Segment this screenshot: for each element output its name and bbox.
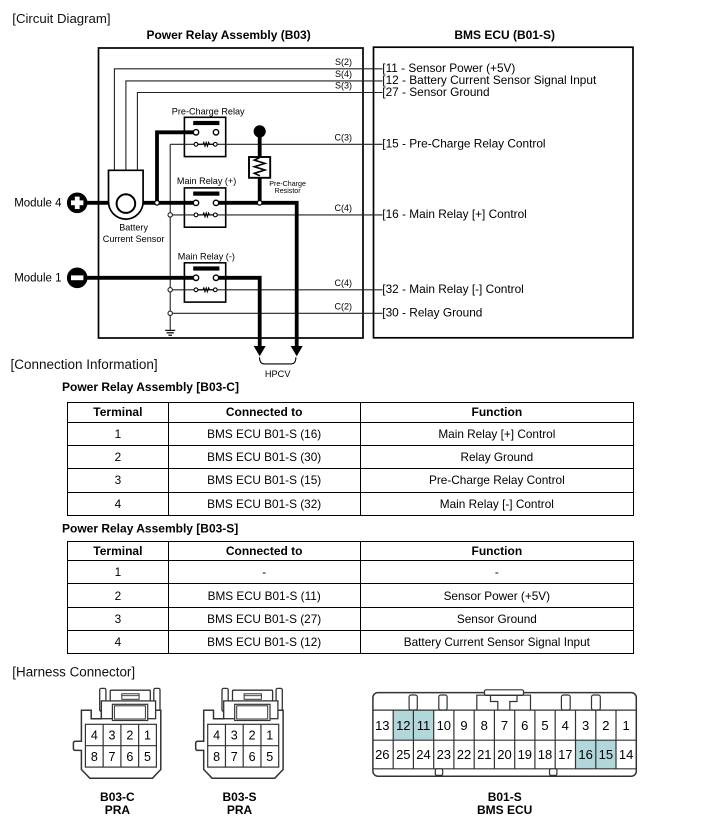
svg-text:BMS ECU (B01-S): BMS ECU (B01-S) <box>454 28 555 42</box>
svg-text:5: 5 <box>541 718 548 733</box>
svg-text:10: 10 <box>437 718 451 733</box>
svg-text:13: 13 <box>375 718 389 733</box>
svg-text:HPCV: HPCV <box>265 369 291 379</box>
svg-text:[16 - Main Relay [+] Control: [16 - Main Relay [+] Control <box>382 207 527 221</box>
svg-text:S(2): S(2) <box>335 57 352 67</box>
svg-text:C(2): C(2) <box>335 302 353 312</box>
svg-text:BMS ECU: BMS ECU <box>477 803 532 817</box>
svg-text:25: 25 <box>396 747 410 762</box>
svg-text:15: 15 <box>599 747 613 762</box>
svg-text:9: 9 <box>460 718 467 733</box>
svg-text:[27 - Sensor Ground: [27 - Sensor Ground <box>382 85 489 99</box>
svg-text:14: 14 <box>619 747 633 762</box>
svg-text:Pre-Charge Relay: Pre-Charge Relay <box>172 106 245 116</box>
svg-text:C(4): C(4) <box>335 278 353 288</box>
svg-text:8: 8 <box>481 718 488 733</box>
svg-text:6: 6 <box>521 718 528 733</box>
svg-text:C(3): C(3) <box>335 132 353 142</box>
svg-text:Current Sensor: Current Sensor <box>103 234 165 244</box>
svg-text:23: 23 <box>437 747 451 762</box>
svg-text:B03-C: B03-C <box>100 790 135 804</box>
svg-text:4: 4 <box>562 718 569 733</box>
svg-text:[30 - Relay Ground: [30 - Relay Ground <box>382 306 482 320</box>
svg-text:20: 20 <box>497 747 511 762</box>
svg-text:Module 4: Module 4 <box>14 198 62 210</box>
svg-text:12: 12 <box>396 718 410 733</box>
svg-text:PRA: PRA <box>227 803 253 817</box>
svg-text:2: 2 <box>602 718 609 733</box>
svg-text:B03-S: B03-S <box>222 790 256 804</box>
svg-text:16: 16 <box>578 747 592 762</box>
svg-text:24: 24 <box>416 747 430 762</box>
svg-text:[32 - Main Relay [-] Control: [32 - Main Relay [-] Control <box>382 282 524 296</box>
svg-text:26: 26 <box>375 747 389 762</box>
svg-text:PRA: PRA <box>105 803 131 817</box>
svg-text:Resistor: Resistor <box>275 187 302 195</box>
svg-text:S(3): S(3) <box>335 81 352 91</box>
svg-text:S(4): S(4) <box>335 69 352 79</box>
svg-text:Battery: Battery <box>119 223 148 233</box>
svg-text:17: 17 <box>558 747 572 762</box>
svg-text:22: 22 <box>457 747 471 762</box>
svg-text:Module 1: Module 1 <box>14 273 61 285</box>
svg-text:[Harness Connector]: [Harness Connector] <box>12 664 135 679</box>
svg-text:19: 19 <box>518 747 532 762</box>
svg-text:Power Relay Assembly [B03-S]: Power Relay Assembly [B03-S] <box>62 522 238 536</box>
svg-text:Main Relay (-): Main Relay (-) <box>178 252 235 262</box>
svg-text:3: 3 <box>582 718 589 733</box>
svg-text:1: 1 <box>622 718 629 733</box>
svg-text:[Circuit Diagram]: [Circuit Diagram] <box>12 11 110 26</box>
svg-text:C(4): C(4) <box>335 203 353 213</box>
svg-text:B01-S: B01-S <box>488 790 522 804</box>
svg-text:Power Relay Assembly [B03-C]: Power Relay Assembly [B03-C] <box>62 380 239 394</box>
svg-text:Main Relay (+): Main Relay (+) <box>177 176 236 186</box>
svg-text:7: 7 <box>501 718 508 733</box>
svg-text:18: 18 <box>538 747 552 762</box>
svg-text:[15 - Pre-Charge Relay Control: [15 - Pre-Charge Relay Control <box>382 137 545 151</box>
svg-text:11: 11 <box>417 718 431 733</box>
svg-text:21: 21 <box>477 747 491 762</box>
svg-text:[Connection Information]: [Connection Information] <box>11 357 158 372</box>
svg-text:Power Relay Assembly (B03): Power Relay Assembly (B03) <box>146 28 310 42</box>
